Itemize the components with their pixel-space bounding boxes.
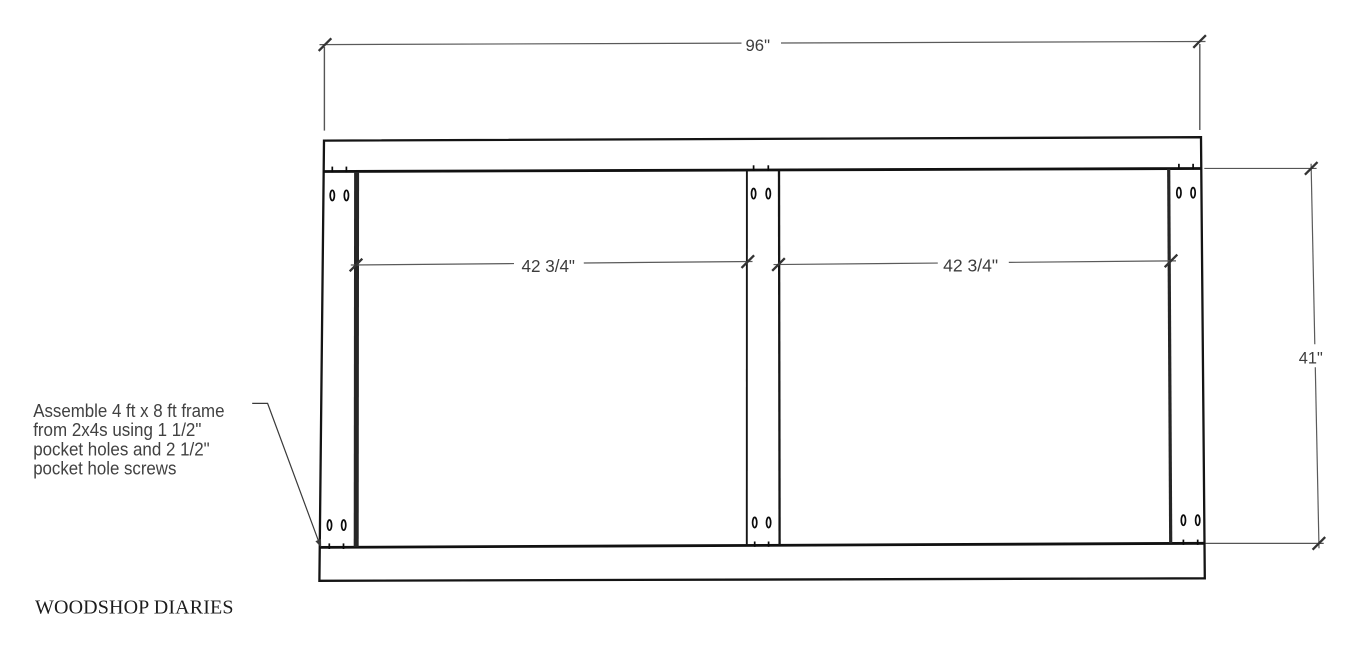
svg-text:pocket holes and 2 1/2": pocket holes and 2 1/2" [33,439,210,459]
svg-text:96": 96" [746,36,771,55]
svg-text:WOODSHOP DIARIES: WOODSHOP DIARIES [35,597,234,619]
svg-text:pocket hole screws: pocket hole screws [33,459,176,479]
svg-text:41": 41" [1299,349,1323,367]
svg-text:42 3/4": 42 3/4" [943,255,998,275]
svg-text:42 3/4": 42 3/4" [522,256,576,276]
svg-text:from 2x4s using 1 1/2": from 2x4s using 1 1/2" [33,420,201,440]
svg-text:Assemble 4 ft x 8 ft frame: Assemble 4 ft x 8 ft frame [33,401,224,421]
